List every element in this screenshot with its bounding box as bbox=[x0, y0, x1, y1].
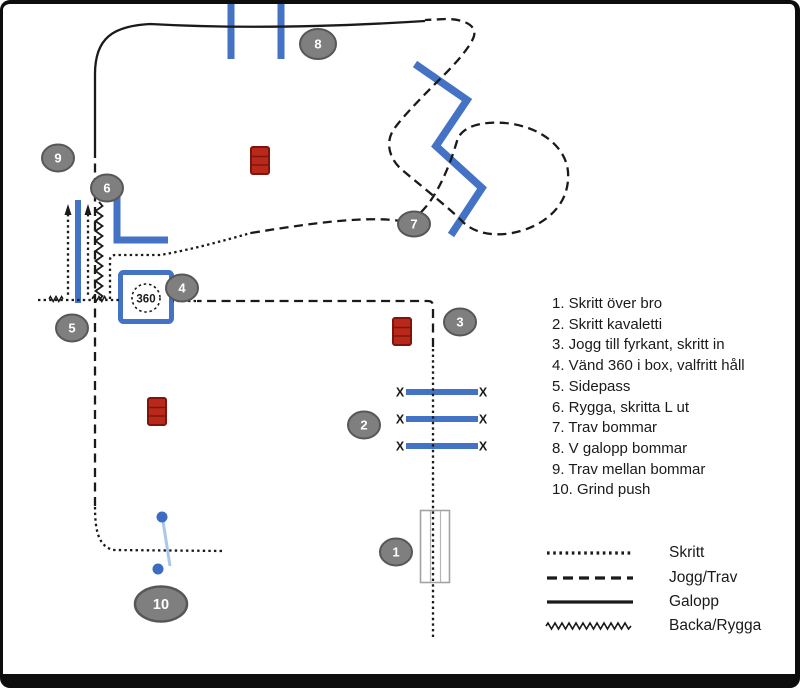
svg-text:6: 6 bbox=[103, 181, 110, 196]
x-mark: X bbox=[396, 386, 405, 400]
x-mark: X bbox=[396, 440, 405, 454]
course-step: 2. Skritt kavaletti bbox=[552, 315, 745, 336]
kavaletti-2: X X X X X X bbox=[396, 386, 488, 454]
l-pole bbox=[117, 189, 168, 240]
marker-5: 5 bbox=[56, 315, 88, 342]
marker-2: 2 bbox=[348, 412, 380, 439]
gate-post bbox=[153, 564, 164, 575]
gate-10 bbox=[153, 512, 171, 575]
barrel bbox=[251, 147, 269, 174]
svg-text:3: 3 bbox=[456, 315, 463, 330]
legend-label: Galopp bbox=[669, 593, 719, 611]
legend-row-skritt: Skritt bbox=[545, 544, 704, 562]
svg-text:5: 5 bbox=[68, 321, 75, 336]
dotted-line-sample bbox=[545, 546, 635, 560]
course-step: 4. Vänd 360 i box, valfritt håll bbox=[552, 356, 745, 377]
dashed-line-sample bbox=[545, 571, 635, 585]
barrel bbox=[393, 318, 411, 345]
svg-text:7: 7 bbox=[410, 217, 417, 232]
legend-label: Skritt bbox=[669, 544, 704, 562]
course-step: 5. Sidepass bbox=[552, 377, 745, 398]
gate-bar bbox=[163, 521, 170, 566]
svg-text:8: 8 bbox=[314, 37, 321, 52]
legend-row-jogg-trav: Jogg/Trav bbox=[545, 569, 737, 587]
svg-text:9: 9 bbox=[54, 151, 61, 166]
course-step: 7. Trav bommar bbox=[552, 418, 745, 439]
zigzag-line-sample bbox=[545, 619, 635, 633]
gate-post bbox=[157, 512, 168, 523]
marker-7: 7 bbox=[398, 212, 430, 237]
arrow-up-icon bbox=[85, 204, 92, 215]
legend-label: Jogg/Trav bbox=[669, 569, 737, 587]
legend-row-galopp: Galopp bbox=[545, 593, 719, 611]
svg-text:1: 1 bbox=[392, 545, 399, 560]
svg-text:4: 4 bbox=[178, 281, 186, 296]
course-step: 6. Rygga, skritta L ut bbox=[552, 398, 745, 419]
course-step: 10. Grind push bbox=[552, 480, 745, 501]
barrel bbox=[148, 398, 166, 425]
course-step: 3. Jogg till fyrkant, skritt in bbox=[552, 335, 745, 356]
x-mark: X bbox=[479, 386, 488, 400]
rygga-zigzag-path bbox=[96, 202, 103, 300]
trav-paths bbox=[95, 19, 568, 506]
l-shape-poles-6 bbox=[117, 189, 168, 240]
course-step: 1. Skritt över bro bbox=[552, 294, 745, 315]
solid-line-sample bbox=[545, 595, 635, 609]
marker-8: 8 bbox=[300, 29, 336, 59]
x-mark: X bbox=[479, 413, 488, 427]
svg-text:2: 2 bbox=[360, 418, 367, 433]
bridge-deck bbox=[421, 511, 450, 583]
svg-text:10: 10 bbox=[153, 597, 169, 613]
trav-loop-path bbox=[251, 19, 568, 234]
marker-4: 4 bbox=[166, 275, 198, 302]
marker-9: 9 bbox=[42, 145, 74, 172]
marker-1: 1 bbox=[380, 539, 412, 566]
marker-3: 3 bbox=[444, 309, 476, 336]
course-map: 360 X X X X X X bbox=[0, 0, 800, 688]
turn-box-4: 360 bbox=[121, 273, 172, 322]
marker-10: 10 bbox=[135, 587, 187, 622]
arrow-up-icon bbox=[65, 204, 72, 215]
legend-row-backa-rygga: Backa/Rygga bbox=[545, 617, 761, 635]
x-mark: X bbox=[479, 440, 488, 454]
course-step-list: 1. Skritt över bro 2. Skritt kavaletti 3… bbox=[552, 294, 745, 501]
galopp-path bbox=[95, 21, 425, 149]
bridge-1 bbox=[421, 511, 450, 583]
x-mark: X bbox=[396, 413, 405, 427]
course-step: 8. V galopp bommar bbox=[552, 439, 745, 460]
turn-degrees-label: 360 bbox=[136, 294, 155, 306]
course-step: 9. Trav mellan bommar bbox=[552, 460, 745, 481]
marker-6: 6 bbox=[91, 175, 123, 202]
legend-label: Backa/Rygga bbox=[669, 617, 761, 635]
galopp-poles-8 bbox=[231, 3, 281, 59]
